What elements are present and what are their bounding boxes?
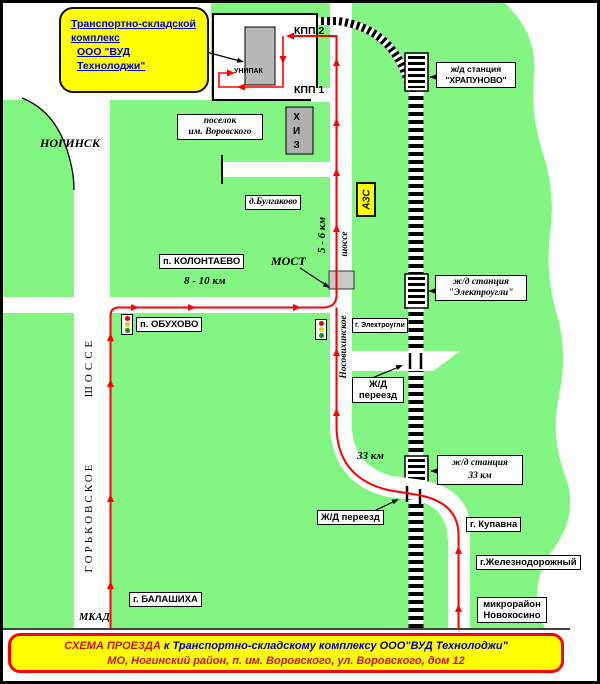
label-novokosino: микрорайон Новокосино: [477, 597, 547, 623]
callout-line3: ООО "ВУД Технолоджи": [71, 45, 201, 73]
banner-line1-rest: к Транспортно-складскому комплексу ООО"В…: [161, 640, 508, 652]
label-station-km33: ж/д станция 33 км: [437, 455, 523, 485]
callout-line2: комплекс: [71, 31, 201, 45]
label-obukhovo: п. ОБУХОВО: [136, 317, 202, 332]
bridge: [329, 271, 354, 289]
road-side: [222, 162, 330, 177]
label-khiz: Х И З: [293, 111, 300, 153]
station-khrapunovo-block: [405, 53, 428, 91]
traffic-red-dot: [319, 321, 324, 326]
complex-callout: Транспортно-складской комплекс ООО "ВУД …: [59, 7, 209, 93]
callout-line1: Транспортно-складской: [71, 17, 201, 31]
label-crossing-north: Ж/Д переезд: [352, 377, 404, 403]
label-nosovikhinskoe-upper: шоссе: [340, 225, 350, 263]
route-map: Транспортно-складской комплекс ООО "ВУД …: [0, 0, 600, 684]
banner-line2: МО, Ногинский район, п. им. Воровского, …: [11, 654, 561, 669]
label-gorkovskoe-lower: ГОРЬКОВСКОЕ: [83, 438, 95, 596]
label-distance-8-10: 8 - 10 км: [184, 275, 226, 287]
azs-marker: АЗС: [356, 182, 376, 217]
traffic-green-dot: [319, 333, 324, 338]
station-elektrougli-block: [405, 274, 428, 308]
traffic-yellow-dot: [125, 322, 130, 327]
label-kpp1: КПП 1: [294, 84, 324, 96]
banner-line1: СХЕМА ПРОЕЗДА к Транспортно-складскому к…: [11, 639, 561, 654]
label-posyolok: поселок им. Воровского: [177, 114, 263, 140]
road-kolontaevo: [3, 297, 352, 313]
label-bulgakovo: д.Булгаково: [245, 195, 301, 210]
route-banner: СХЕМА ПРОЕЗДА к Транспортно-складскому к…: [8, 633, 564, 673]
label-distance-5-6: 5 - 6 км: [316, 195, 328, 275]
label-station-elektrougli: ж/д станция "Электроугли": [435, 275, 527, 301]
label-nosovikhinskoe-lower: Носовихинское: [339, 293, 349, 401]
traffic-yellow-dot: [319, 327, 324, 332]
traffic-green-dot: [125, 328, 130, 333]
label-km33: 33 км: [357, 450, 384, 462]
label-balashikha: г. БАЛАШИХА: [129, 592, 202, 607]
traffic-red-dot: [125, 316, 130, 321]
traffic-light-elektrougli: [315, 319, 327, 340]
label-kpp2: КПП 2: [294, 25, 324, 37]
label-mkad: МКАД: [79, 612, 110, 623]
label-unipak: УНИПАК: [234, 68, 263, 75]
label-station-khrapunovo: ж/д станция "ХРАПУНОВО": [436, 62, 516, 88]
label-gorkovskoe-upper: ШОССЕ: [83, 329, 95, 405]
label-zheleznodorozhny: г.Железнодорожный: [476, 555, 581, 570]
label-most: МОСТ: [271, 254, 306, 269]
unipak-building: [245, 27, 275, 85]
label-elektrougli-town: г. Электроугли: [352, 318, 408, 333]
label-noginsk: НОГИНСК: [40, 136, 100, 151]
banner-title: СХЕМА ПРОЕЗДА: [64, 640, 161, 652]
label-kolontaevo: п. КОЛОНТАЕВО: [159, 254, 244, 269]
azs-label: АЗС: [362, 182, 373, 218]
label-crossing-south: Ж/Д переезд: [317, 510, 384, 525]
label-kupavna: г. Купавна: [466, 517, 521, 532]
traffic-light-obukhovo: [121, 314, 133, 335]
